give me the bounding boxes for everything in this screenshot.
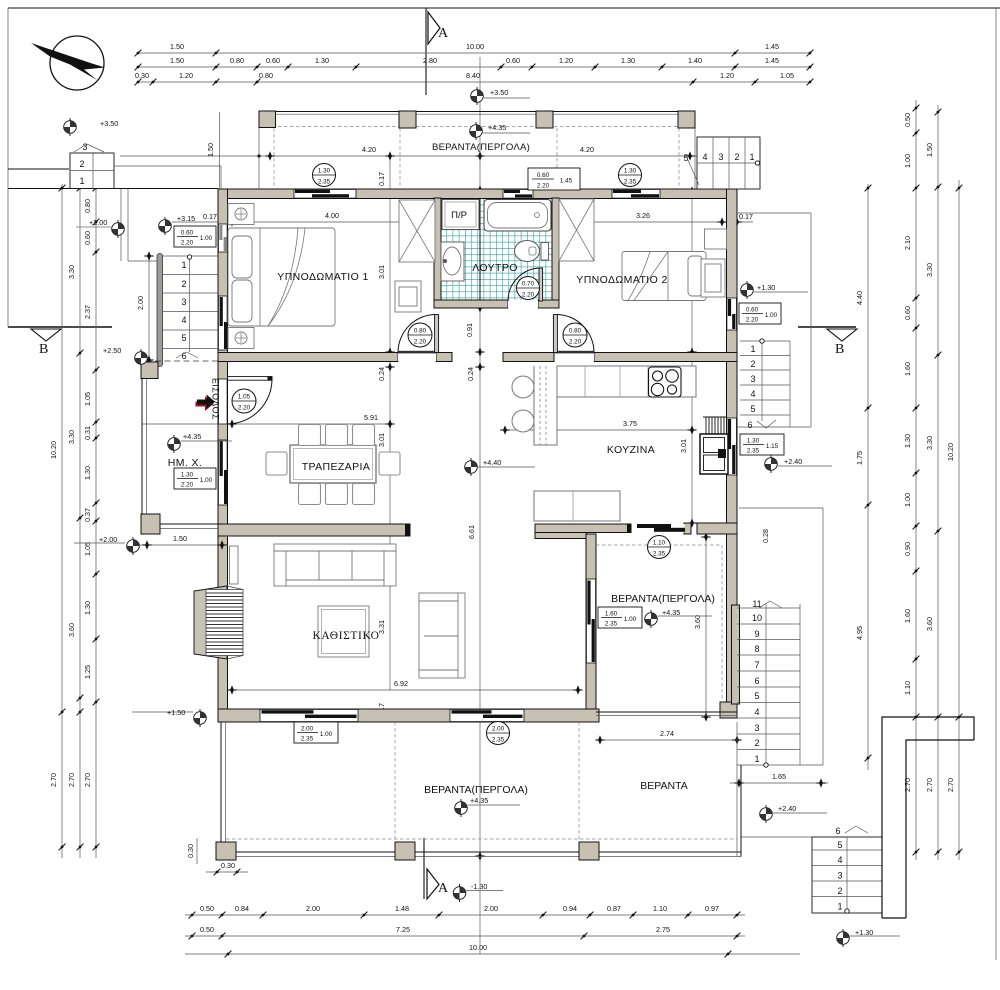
svg-text:0.17: 0.17: [203, 212, 217, 221]
svg-text:0.30: 0.30: [221, 861, 235, 870]
svg-text:1.05: 1.05: [780, 71, 794, 80]
svg-text:2.00: 2.00: [484, 904, 498, 913]
svg-text:2.20: 2.20: [746, 317, 759, 324]
svg-text:+4.35: +4.35: [488, 123, 506, 132]
svg-text:1: 1: [837, 902, 842, 912]
svg-text:0.60: 0.60: [537, 172, 550, 179]
svg-text:0.50: 0.50: [200, 925, 214, 934]
svg-text:3.01: 3.01: [679, 439, 688, 453]
svg-text:+4.40: +4.40: [483, 458, 501, 467]
svg-text:0.17: 0.17: [739, 212, 753, 221]
svg-text:3: 3: [718, 152, 723, 162]
svg-text:1.10: 1.10: [903, 681, 912, 695]
svg-text:3.30: 3.30: [925, 436, 934, 450]
svg-text:3.75: 3.75: [623, 419, 637, 428]
svg-text:2.75: 2.75: [656, 925, 670, 934]
svg-text:2.20: 2.20: [238, 405, 251, 412]
svg-text:1: 1: [749, 152, 754, 162]
svg-text:1.05: 1.05: [238, 394, 251, 401]
svg-text:ΕΙΣΟΔΟΣ: ΕΙΣΟΔΟΣ: [211, 378, 221, 420]
svg-text:1.40: 1.40: [688, 56, 702, 65]
svg-text:3: 3: [754, 723, 759, 733]
svg-text:ΒΕΡΑΝΤΑ(ΠΕΡΓΟΛΑ): ΒΕΡΑΝΤΑ(ΠΕΡΓΟΛΑ): [424, 784, 528, 796]
svg-text:9: 9: [754, 629, 759, 639]
svg-text:+4.35: +4.35: [470, 796, 488, 805]
svg-text:2.70: 2.70: [83, 773, 92, 787]
svg-text:1.20: 1.20: [559, 56, 573, 65]
svg-text:2.35: 2.35: [653, 551, 666, 558]
svg-text:0.50: 0.50: [200, 904, 214, 913]
svg-text:6: 6: [754, 676, 759, 686]
svg-text:+1.50: +1.50: [167, 708, 185, 717]
svg-text:10.20: 10.20: [946, 443, 955, 461]
svg-text:1.30: 1.30: [903, 434, 912, 448]
svg-text:0.80: 0.80: [414, 328, 427, 335]
svg-text:ΗΜ. Χ.: ΗΜ. Χ.: [168, 457, 203, 469]
svg-text:5: 5: [750, 404, 755, 414]
svg-text:1.60: 1.60: [903, 609, 912, 623]
svg-text:0.80: 0.80: [230, 56, 244, 65]
svg-text:2: 2: [837, 886, 842, 896]
svg-text:4: 4: [754, 707, 759, 717]
svg-text:2: 2: [734, 152, 739, 162]
svg-text:+3.50: +3.50: [490, 88, 508, 97]
svg-text:+2.00: +2.00: [99, 535, 117, 544]
svg-text:0.60: 0.60: [83, 231, 92, 245]
svg-text:A: A: [438, 881, 449, 896]
svg-text:3.01: 3.01: [377, 265, 386, 279]
svg-text:1: 1: [181, 260, 186, 270]
svg-text:1.30: 1.30: [624, 168, 637, 175]
svg-text:2.74: 2.74: [660, 729, 674, 738]
svg-text:1.45: 1.45: [765, 42, 779, 51]
svg-text:2.20: 2.20: [414, 339, 427, 346]
svg-text:3.30: 3.30: [925, 263, 934, 277]
svg-text:2: 2: [754, 738, 759, 748]
svg-text:1.30: 1.30: [315, 56, 329, 65]
svg-text:3.60: 3.60: [925, 617, 934, 631]
svg-text:3.60: 3.60: [693, 615, 702, 629]
svg-text:2.70: 2.70: [903, 778, 912, 792]
svg-text:1.75: 1.75: [855, 451, 864, 465]
svg-text:ΥΠΝΟΔΩΜΑΤΙΟ 2: ΥΠΝΟΔΩΜΑΤΙΟ 2: [576, 274, 667, 286]
svg-text:2.35: 2.35: [605, 621, 618, 628]
svg-text:3.30: 3.30: [67, 430, 76, 444]
svg-text:1.00: 1.00: [200, 235, 213, 242]
svg-text:2.00: 2.00: [306, 904, 320, 913]
svg-text:10: 10: [752, 613, 762, 623]
svg-text:6.61: 6.61: [467, 525, 476, 539]
svg-text:1.10: 1.10: [653, 904, 667, 913]
svg-text:4.95: 4.95: [855, 626, 864, 640]
svg-text:+2.40: +2.40: [778, 804, 796, 813]
svg-text:1.60: 1.60: [903, 362, 912, 376]
svg-text:4.00: 4.00: [325, 211, 339, 220]
svg-text:2.20: 2.20: [181, 240, 194, 247]
svg-text:1.30: 1.30: [83, 466, 92, 480]
svg-text:0.50: 0.50: [903, 113, 912, 127]
svg-text:10.00: 10.00: [466, 42, 484, 51]
svg-text:1.50: 1.50: [173, 534, 187, 543]
svg-text:2.35: 2.35: [492, 737, 505, 744]
svg-text:0.24: 0.24: [466, 367, 475, 381]
svg-text:0.60: 0.60: [266, 56, 280, 65]
svg-text:2.35: 2.35: [301, 736, 314, 743]
svg-text:5: 5: [683, 153, 688, 163]
svg-text:1: 1: [750, 344, 755, 354]
svg-text:0.60: 0.60: [181, 230, 194, 237]
svg-text:2.70: 2.70: [925, 778, 934, 792]
svg-text:4.20: 4.20: [580, 145, 594, 154]
svg-text:2: 2: [750, 359, 755, 369]
svg-text:3.01: 3.01: [377, 433, 386, 447]
svg-text:+2.00: +2.00: [89, 218, 107, 227]
svg-text:0.60: 0.60: [903, 306, 912, 320]
svg-text:4.40: 4.40: [855, 291, 864, 305]
svg-text:1.10: 1.10: [653, 540, 666, 547]
svg-text:1.00: 1.00: [624, 616, 637, 623]
svg-text:1: 1: [754, 754, 759, 764]
svg-text:2.20: 2.20: [537, 183, 550, 190]
svg-text:8: 8: [754, 644, 759, 654]
svg-text:1.00: 1.00: [903, 493, 912, 507]
svg-text:1.00: 1.00: [903, 154, 912, 168]
svg-text:0.80: 0.80: [259, 71, 273, 80]
svg-text:2.35: 2.35: [624, 179, 637, 186]
svg-text:1.05: 1.05: [83, 392, 92, 406]
svg-text:0.37: 0.37: [83, 508, 92, 522]
svg-text:0.80: 0.80: [569, 328, 582, 335]
svg-text:6.92: 6.92: [394, 679, 408, 688]
svg-text:2.70: 2.70: [946, 778, 955, 792]
svg-text:1.30: 1.30: [181, 472, 194, 479]
svg-text:1.50: 1.50: [925, 143, 934, 157]
svg-text:5.91: 5.91: [364, 413, 378, 422]
svg-text:1.25: 1.25: [83, 665, 92, 679]
svg-text:10.00: 10.00: [469, 943, 487, 952]
svg-text:3: 3: [837, 871, 842, 881]
svg-text:5: 5: [754, 691, 759, 701]
svg-text:4: 4: [837, 855, 842, 865]
svg-text:8.40: 8.40: [466, 71, 480, 80]
svg-text:0.24: 0.24: [377, 367, 386, 381]
svg-text:1.05: 1.05: [83, 542, 92, 556]
svg-text:0.17: 0.17: [377, 172, 386, 186]
svg-text:+4.35: +4.35: [662, 608, 680, 617]
svg-text:4: 4: [750, 389, 755, 399]
svg-text:2.10: 2.10: [903, 236, 912, 250]
svg-text:4: 4: [181, 315, 186, 325]
svg-text:0.28: 0.28: [761, 529, 770, 543]
svg-text:ΚΑΘΙΣΤΙΚΟ: ΚΑΘΙΣΤΙΚΟ: [312, 630, 379, 642]
svg-text:1.30: 1.30: [83, 601, 92, 615]
svg-text:2.80: 2.80: [423, 56, 437, 65]
svg-text:3: 3: [750, 374, 755, 384]
svg-text:1.00: 1.00: [765, 312, 778, 319]
svg-text:2: 2: [181, 279, 186, 289]
svg-text:0.80: 0.80: [83, 199, 92, 213]
svg-text:3: 3: [181, 297, 186, 307]
svg-text:1.45: 1.45: [765, 56, 779, 65]
svg-text:0.97: 0.97: [705, 904, 719, 913]
svg-text:B: B: [39, 342, 48, 357]
svg-text:1.50: 1.50: [170, 42, 184, 51]
svg-text:ΚΟΥΖΙΝΑ: ΚΟΥΖΙΝΑ: [607, 444, 655, 456]
svg-text:ΒΕΡΑΝΤΑ: ΒΕΡΑΝΤΑ: [640, 780, 687, 792]
svg-text:2.20: 2.20: [522, 292, 535, 299]
svg-text:ΒΕΡΑΝΤΑ(ΠΕΡΓΟΛΑ): ΒΕΡΑΝΤΑ(ΠΕΡΓΟΛΑ): [611, 593, 715, 605]
svg-text:0.70: 0.70: [522, 281, 535, 288]
svg-text:4: 4: [702, 152, 707, 162]
svg-text:1.30: 1.30: [747, 438, 760, 445]
svg-text:0.94: 0.94: [563, 904, 577, 913]
svg-text:+2.50: +2.50: [103, 346, 121, 355]
svg-text:2.35: 2.35: [318, 179, 331, 186]
svg-text:+1.30: +1.30: [757, 283, 775, 292]
svg-text:1.30: 1.30: [621, 56, 635, 65]
svg-text:2.20: 2.20: [569, 339, 582, 346]
svg-text:7.25: 7.25: [396, 925, 410, 934]
svg-text:1.30: 1.30: [318, 168, 331, 175]
svg-text:A: A: [438, 26, 449, 41]
svg-text:1.60: 1.60: [605, 611, 618, 618]
svg-text:0.90: 0.90: [903, 542, 912, 556]
svg-text:1.48: 1.48: [395, 904, 409, 913]
svg-text:0.60: 0.60: [506, 56, 520, 65]
svg-text:1.50: 1.50: [206, 143, 215, 157]
svg-text:5: 5: [837, 840, 842, 850]
svg-text:0.31: 0.31: [83, 426, 92, 440]
svg-text:5: 5: [181, 333, 186, 343]
svg-text:3.26: 3.26: [636, 211, 650, 220]
svg-text:2.70: 2.70: [49, 773, 58, 787]
svg-text:Π/Ρ: Π/Ρ: [451, 210, 467, 221]
svg-text:0.60: 0.60: [746, 307, 759, 314]
svg-text:1.50: 1.50: [170, 56, 184, 65]
svg-text:2.00: 2.00: [136, 296, 145, 310]
svg-text:1.15: 1.15: [766, 443, 779, 450]
svg-text:1.00: 1.00: [200, 477, 213, 484]
svg-text:4.20: 4.20: [362, 145, 376, 154]
svg-text:ΒΕΡΑΝΤΑ(ΠΕΡΓΟΛΑ): ΒΕΡΑΝΤΑ(ΠΕΡΓΟΛΑ): [432, 142, 530, 153]
svg-text:1.00: 1.00: [320, 731, 333, 738]
svg-text:ΛΟΥΤΡΟ: ΛΟΥΤΡΟ: [472, 262, 518, 274]
svg-text:B: B: [835, 342, 844, 357]
svg-text:ΥΠΝΟΔΩΜΑΤΙΟ 1: ΥΠΝΟΔΩΜΑΤΙΟ 1: [277, 271, 368, 283]
svg-text:0.91: 0.91: [465, 323, 474, 337]
svg-text:6: 6: [747, 420, 752, 430]
svg-text:1.20: 1.20: [720, 71, 734, 80]
svg-text:0.30: 0.30: [186, 844, 195, 858]
svg-text:0.84: 0.84: [235, 904, 249, 913]
svg-text:2.00: 2.00: [492, 726, 505, 733]
svg-text:1.45: 1.45: [560, 178, 573, 185]
svg-text:+2.40: +2.40: [784, 457, 802, 466]
svg-text:-1.30: -1.30: [471, 882, 487, 891]
svg-text:1.20: 1.20: [179, 71, 193, 80]
svg-text:0.87: 0.87: [607, 904, 621, 913]
svg-text:2.35: 2.35: [747, 448, 760, 455]
svg-text:+3.15: +3.15: [177, 214, 195, 223]
svg-text:1.65: 1.65: [772, 772, 786, 781]
svg-text:ΤΡΑΠΕΖΑΡΙΑ: ΤΡΑΠΕΖΑΡΙΑ: [302, 461, 371, 473]
svg-text:2.00: 2.00: [301, 726, 314, 733]
svg-text:7: 7: [754, 660, 759, 670]
svg-text:+3.50: +3.50: [100, 119, 118, 128]
svg-text:2.20: 2.20: [181, 482, 194, 489]
svg-text:2: 2: [79, 159, 84, 169]
svg-text:1: 1: [79, 176, 84, 186]
svg-text:+1.30: +1.30: [855, 928, 873, 937]
svg-text:2.70: 2.70: [67, 773, 76, 787]
svg-text:6: 6: [835, 826, 840, 836]
svg-text:10.20: 10.20: [49, 441, 58, 459]
svg-text:+4.35: +4.35: [183, 432, 201, 441]
svg-text:3.60: 3.60: [67, 623, 76, 637]
svg-text:3: 3: [82, 142, 87, 152]
svg-text:2.37: 2.37: [83, 305, 92, 319]
svg-text:0.30: 0.30: [135, 71, 149, 80]
svg-text:3.30: 3.30: [67, 265, 76, 279]
